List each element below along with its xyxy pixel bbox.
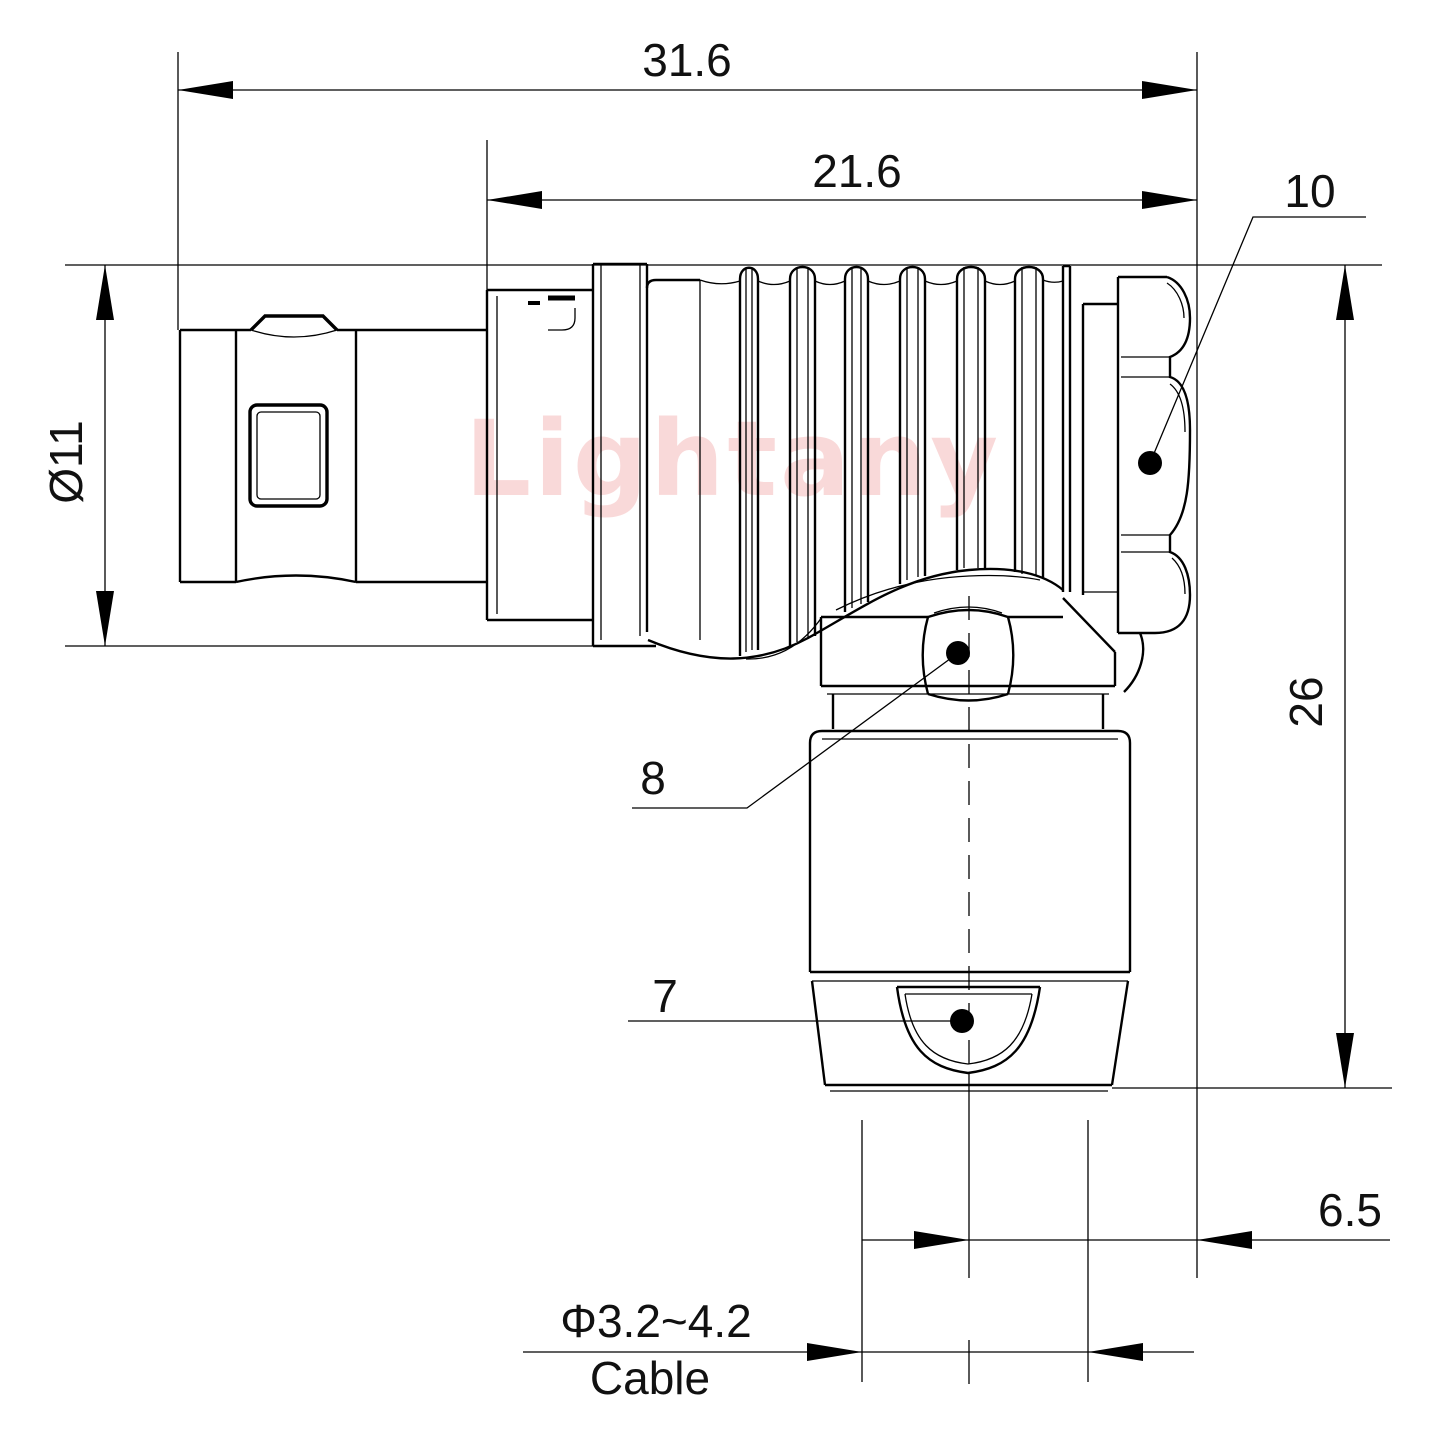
rib6-sides: [1015, 279, 1043, 578]
hex-bulge-bottom-arc: [928, 694, 1008, 701]
dim-cable-offset-value: 6.5: [1318, 1184, 1382, 1236]
coupling-nut: [1083, 277, 1190, 692]
dim-cable-dia-left-arrow: [1088, 1343, 1143, 1361]
nut-petal-echo-2: [1170, 384, 1185, 432]
connector-dimension-drawing: Lightany: [0, 0, 1440, 1440]
hex-bulge-left-curve: [923, 617, 928, 694]
watermark-text: Lightany: [465, 398, 1001, 520]
callout-hex-backnut: 8: [632, 641, 970, 808]
dim-cable-offset-left-arrow: [1197, 1231, 1252, 1249]
groove-sag-5: [985, 281, 1015, 285]
rib6-inner: [1022, 267, 1036, 576]
taper-left-edge: [812, 981, 825, 1085]
dim-cable-diameter: Φ3.2~4.2 Cable: [523, 1295, 1194, 1404]
groove-sag-0: [700, 280, 740, 284]
nut-groove-band-upper: [1121, 357, 1170, 377]
callout-8-label: 8: [640, 752, 666, 804]
dim-body-right-arrow: [1142, 191, 1197, 209]
connector-part: [180, 264, 1190, 1091]
dim-height-top-arrow: [1336, 265, 1354, 320]
front-plug-barrel: [180, 316, 487, 582]
callout-coupling-nut: 10: [1138, 165, 1366, 475]
cable-sleeve: [810, 694, 1130, 1091]
groove-sag-2: [815, 281, 845, 285]
dimension-annotations: 31.6 21.6 Ø11 26 6.5: [40, 34, 1390, 1404]
callout-10-leader: [1150, 217, 1366, 463]
hex-bulge-right-curve: [1008, 617, 1013, 694]
rib5-cap: [957, 267, 985, 279]
dim-front-diameter-value: Ø11: [40, 420, 92, 504]
latch-bump-outline: [251, 316, 337, 330]
dim-overall-length-value: 31.6: [642, 34, 732, 86]
collar-edges: [833, 694, 1103, 729]
dim-overall-length: 31.6: [178, 34, 1197, 99]
callout-10-label: 10: [1284, 165, 1335, 217]
dim-cable-dia-right-arrow: [807, 1343, 862, 1361]
rib6-cap: [1015, 267, 1043, 279]
reference-lines: [65, 52, 1392, 1384]
rib1-cap: [740, 268, 758, 279]
dim-cable-offset-right-arrow: [914, 1231, 969, 1249]
dim-overall-left-arrow: [178, 81, 233, 99]
dim-front-diameter: Ø11: [40, 265, 114, 646]
callout-8-dot: [946, 641, 970, 665]
keyway-window-outer: [250, 405, 327, 506]
callout-strain-relief: 7: [628, 970, 974, 1033]
groove-sag-3: [868, 281, 900, 285]
cable-word-label: Cable: [590, 1352, 710, 1404]
latch-bump-base-arc: [251, 330, 337, 337]
groove-sag-6: [1043, 280, 1063, 282]
taper-right-edge: [1112, 981, 1128, 1085]
callout-7-dot: [950, 1009, 974, 1033]
nut-groove-band-lower: [1121, 535, 1170, 552]
barrel-bottom-waist-curve: [236, 576, 356, 583]
step-ring-top: [647, 280, 700, 288]
dim-diameter-bottom-arrow: [96, 591, 114, 646]
dim-body-length-value: 21.6: [812, 145, 902, 197]
dim-height-bottom-arrow: [1336, 1033, 1354, 1088]
callout-7-label: 7: [652, 970, 678, 1022]
dim-diameter-top-arrow: [96, 265, 114, 320]
nut-to-elbow-corner: [1124, 633, 1143, 692]
dim-height-value: 26: [1280, 676, 1332, 727]
dim-height: 26: [1280, 265, 1354, 1088]
watermark-layer: Lightany: [465, 398, 1001, 520]
dim-cable-offset: 6.5: [862, 1184, 1390, 1249]
grip-end-collar: [1063, 266, 1070, 592]
dim-cable-diameter-value: Φ3.2~4.2: [560, 1295, 751, 1347]
rib2-cap: [790, 267, 815, 279]
dim-body-length: 21.6: [487, 145, 1197, 209]
hex-right-chamfer: [1063, 598, 1115, 652]
technical-drawing-canvas: Lightany: [0, 0, 1440, 1440]
sleeve-outline: [810, 731, 1130, 972]
dim-overall-right-arrow: [1142, 81, 1197, 99]
callout-10-dot: [1138, 451, 1162, 475]
dim-body-left-arrow: [487, 191, 542, 209]
rib4-cap: [900, 267, 925, 279]
groove-sag-4: [925, 281, 957, 285]
groove-sag-1: [758, 281, 790, 285]
engraving-mark-hook: [548, 308, 575, 330]
keyway-window-inner: [257, 412, 320, 499]
rib3-cap: [845, 267, 868, 279]
